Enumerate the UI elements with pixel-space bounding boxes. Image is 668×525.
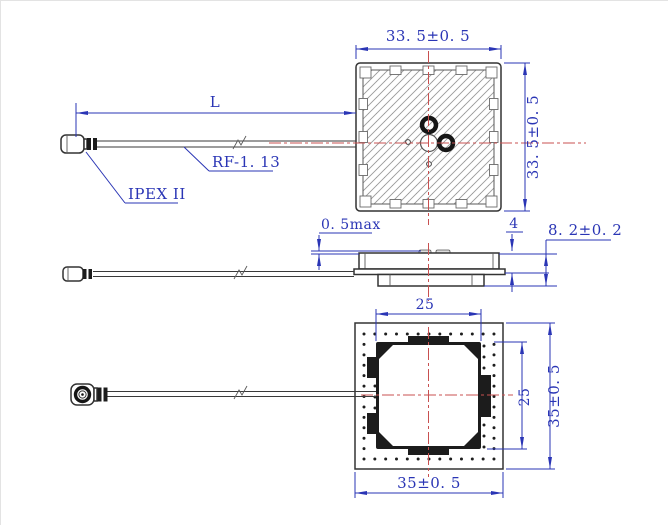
dim-label-cable-type: RF-1. 13 <box>212 153 280 171</box>
dim-label-connector-type: IPEX II <box>128 185 186 203</box>
dim-label-base-width: 35±0. 5 <box>397 474 461 492</box>
bottom-housing-side <box>378 275 484 287</box>
dim-label-top-height: 33. 5±0. 5 <box>524 95 542 179</box>
label-connector-type: IPEX II <box>86 152 186 203</box>
connector-pin <box>81 393 84 396</box>
label-cable-type: RF-1. 13 <box>184 147 280 171</box>
dim-label-ceramic-thickness: 4 <box>509 216 518 232</box>
dim-label-cable-length: L <box>210 93 220 111</box>
bottom-view <box>355 323 513 477</box>
coax-cable-top <box>61 135 356 153</box>
dim-label-overall-height: 8. 2±0. 2 <box>548 221 622 239</box>
antenna-mechanical-drawing: L RF-1. 13 IPEX II 33. 5±0. 5 33. 5±0. 5 <box>0 0 668 525</box>
pcb-side <box>354 269 505 275</box>
side-view <box>354 243 505 301</box>
dim-label-inner-width: 25 <box>416 297 435 313</box>
dim-label-top-width: 33. 5±0. 5 <box>386 27 470 45</box>
dim-cable-length: L <box>76 93 356 137</box>
ipex-connector-side-profile-2 <box>63 267 92 281</box>
ipex-connector-side-profile <box>61 135 97 153</box>
small-hole-left <box>406 140 411 145</box>
drawing-svg: L RF-1. 13 IPEX II 33. 5±0. 5 33. 5±0. 5 <box>1 1 668 525</box>
dim-label-patch-protrusion: 0. 5max <box>321 217 381 233</box>
dim-label-inner-height: 25 <box>517 388 533 407</box>
coax-cable-bottom <box>71 384 376 405</box>
dim-base-width: 35±0. 5 <box>355 472 503 498</box>
dim-top-height: 33. 5±0. 5 <box>504 63 542 211</box>
dim-base-height: 35±0. 5 <box>506 323 563 469</box>
ipex-connector-top-profile <box>71 384 108 405</box>
dim-label-base-height: 35±0. 5 <box>545 364 563 428</box>
coax-cable-side <box>63 266 354 281</box>
